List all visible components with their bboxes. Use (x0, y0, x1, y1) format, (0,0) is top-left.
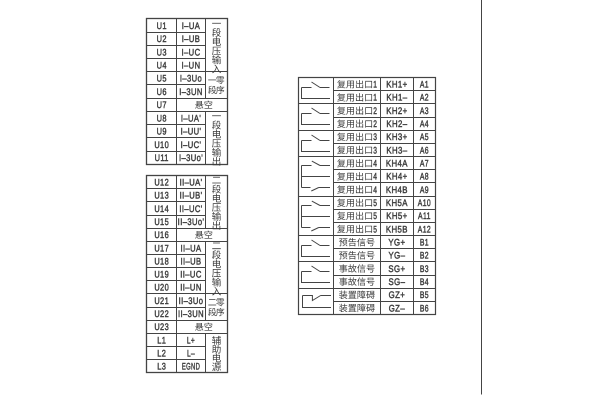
svg-text:A8: A8 (420, 172, 429, 183)
svg-text:II–UB': II–UB' (180, 191, 203, 202)
svg-text:A9: A9 (420, 185, 429, 196)
svg-text:U11: U11 (155, 153, 169, 164)
svg-text:3: 3 (373, 145, 377, 156)
svg-text:I–3Uo': I–3Uo' (179, 153, 203, 164)
svg-text:A10: A10 (418, 198, 431, 209)
svg-text:II–3Uo': II–3Uo' (178, 217, 205, 228)
svg-text:II–3UN: II–3UN (178, 309, 204, 320)
svg-text:U14: U14 (154, 204, 169, 215)
svg-text:II–UN: II–UN (180, 283, 201, 294)
svg-text:SG–: SG– (388, 277, 405, 288)
svg-text:U16: U16 (154, 230, 169, 241)
svg-text:A11: A11 (418, 211, 431, 222)
svg-text:A5: A5 (420, 132, 429, 143)
svg-text:II–UA': II–UA' (180, 178, 203, 189)
svg-text:U12: U12 (154, 178, 169, 189)
svg-text:KH5B: KH5B (386, 224, 408, 235)
svg-text:A2: A2 (420, 93, 429, 104)
svg-text:II–UC': II–UC' (179, 204, 202, 215)
svg-text:U1: U1 (157, 21, 167, 32)
svg-text:L2: L2 (157, 349, 166, 360)
svg-text:U2: U2 (157, 34, 167, 45)
svg-text:U18: U18 (154, 257, 169, 268)
svg-text:U5: U5 (157, 74, 167, 85)
svg-text:GZ–: GZ– (389, 303, 405, 314)
svg-text:U6: U6 (157, 87, 167, 98)
svg-text:2: 2 (373, 106, 377, 117)
svg-text:KH3+: KH3+ (386, 132, 407, 143)
svg-text:GZ+: GZ+ (389, 290, 406, 301)
svg-text:II–UC: II–UC (180, 270, 201, 281)
svg-text:II–UB: II–UB (180, 257, 201, 268)
svg-text:2: 2 (373, 119, 377, 130)
svg-text:B1: B1 (420, 238, 429, 249)
svg-text:L+: L+ (187, 335, 195, 346)
svg-text:KH5A: KH5A (386, 198, 408, 209)
svg-text:KH4A: KH4A (386, 159, 408, 170)
svg-text:I–UB: I–UB (182, 34, 201, 45)
svg-text:KH5+: KH5+ (386, 211, 407, 222)
svg-text:B5: B5 (420, 290, 429, 301)
svg-text:YG–: YG– (388, 251, 405, 262)
svg-text:I–UN: I–UN (182, 61, 201, 72)
svg-text:5: 5 (373, 211, 377, 222)
svg-text:4: 4 (373, 159, 377, 170)
svg-text:U10: U10 (154, 140, 169, 151)
svg-text:5: 5 (373, 224, 377, 235)
svg-text:1: 1 (373, 80, 377, 91)
svg-text:KH4B: KH4B (386, 185, 408, 196)
svg-text:U21: U21 (154, 296, 169, 307)
svg-text:U8: U8 (157, 113, 167, 124)
svg-text:YG+: YG+ (388, 238, 405, 249)
svg-text:II–3Uo: II–3Uo (179, 296, 204, 307)
svg-text:EGND: EGND (182, 362, 200, 373)
svg-text:KH1+: KH1+ (386, 80, 407, 91)
svg-text:U4: U4 (157, 61, 167, 72)
svg-text:II–UA: II–UA (180, 243, 201, 254)
svg-text:A3: A3 (420, 106, 429, 117)
svg-text:U22: U22 (154, 309, 169, 320)
svg-text:KH2–: KH2– (386, 119, 407, 130)
svg-text:L–: L– (187, 349, 195, 360)
svg-text:4: 4 (373, 172, 377, 183)
svg-text:1: 1 (373, 93, 377, 104)
svg-text:A6: A6 (420, 145, 429, 156)
svg-text:B2: B2 (420, 251, 429, 262)
svg-text:KH3–: KH3– (386, 145, 407, 156)
svg-text:U19: U19 (154, 270, 169, 281)
svg-text:A12: A12 (418, 224, 431, 235)
svg-text:I–UC': I–UC' (181, 140, 202, 151)
svg-text:U23: U23 (154, 322, 169, 333)
svg-text:U13: U13 (154, 191, 169, 202)
svg-text:KH2+: KH2+ (386, 106, 407, 117)
svg-text:U17: U17 (154, 243, 169, 254)
svg-text:U7: U7 (157, 100, 167, 111)
svg-text:KH4+: KH4+ (386, 172, 407, 183)
svg-text:I–3Uo: I–3Uo (180, 74, 202, 85)
svg-text:B6: B6 (420, 303, 429, 314)
svg-text:KH1–: KH1– (386, 93, 407, 104)
svg-text:B3: B3 (420, 264, 429, 275)
svg-text:I–3UN: I–3UN (179, 87, 203, 98)
svg-text:5: 5 (373, 198, 377, 209)
svg-text:A1: A1 (420, 80, 429, 91)
svg-text:I–UC: I–UC (182, 47, 201, 58)
svg-text:L3: L3 (157, 362, 166, 373)
svg-text:A7: A7 (420, 159, 429, 170)
svg-text:I–UU': I–UU' (181, 127, 202, 138)
svg-text:U3: U3 (157, 47, 167, 58)
svg-text:I–UA: I–UA (182, 21, 201, 32)
svg-text:U20: U20 (154, 283, 169, 294)
svg-text:U15: U15 (154, 217, 169, 228)
svg-text:U9: U9 (157, 127, 167, 138)
svg-text:4: 4 (373, 185, 377, 196)
svg-text:SG+: SG+ (388, 264, 405, 275)
svg-text:B4: B4 (420, 277, 429, 288)
svg-text:3: 3 (373, 132, 377, 143)
svg-text:I–UA': I–UA' (181, 113, 201, 124)
svg-text:A4: A4 (420, 119, 429, 130)
svg-text:L1: L1 (157, 335, 166, 346)
